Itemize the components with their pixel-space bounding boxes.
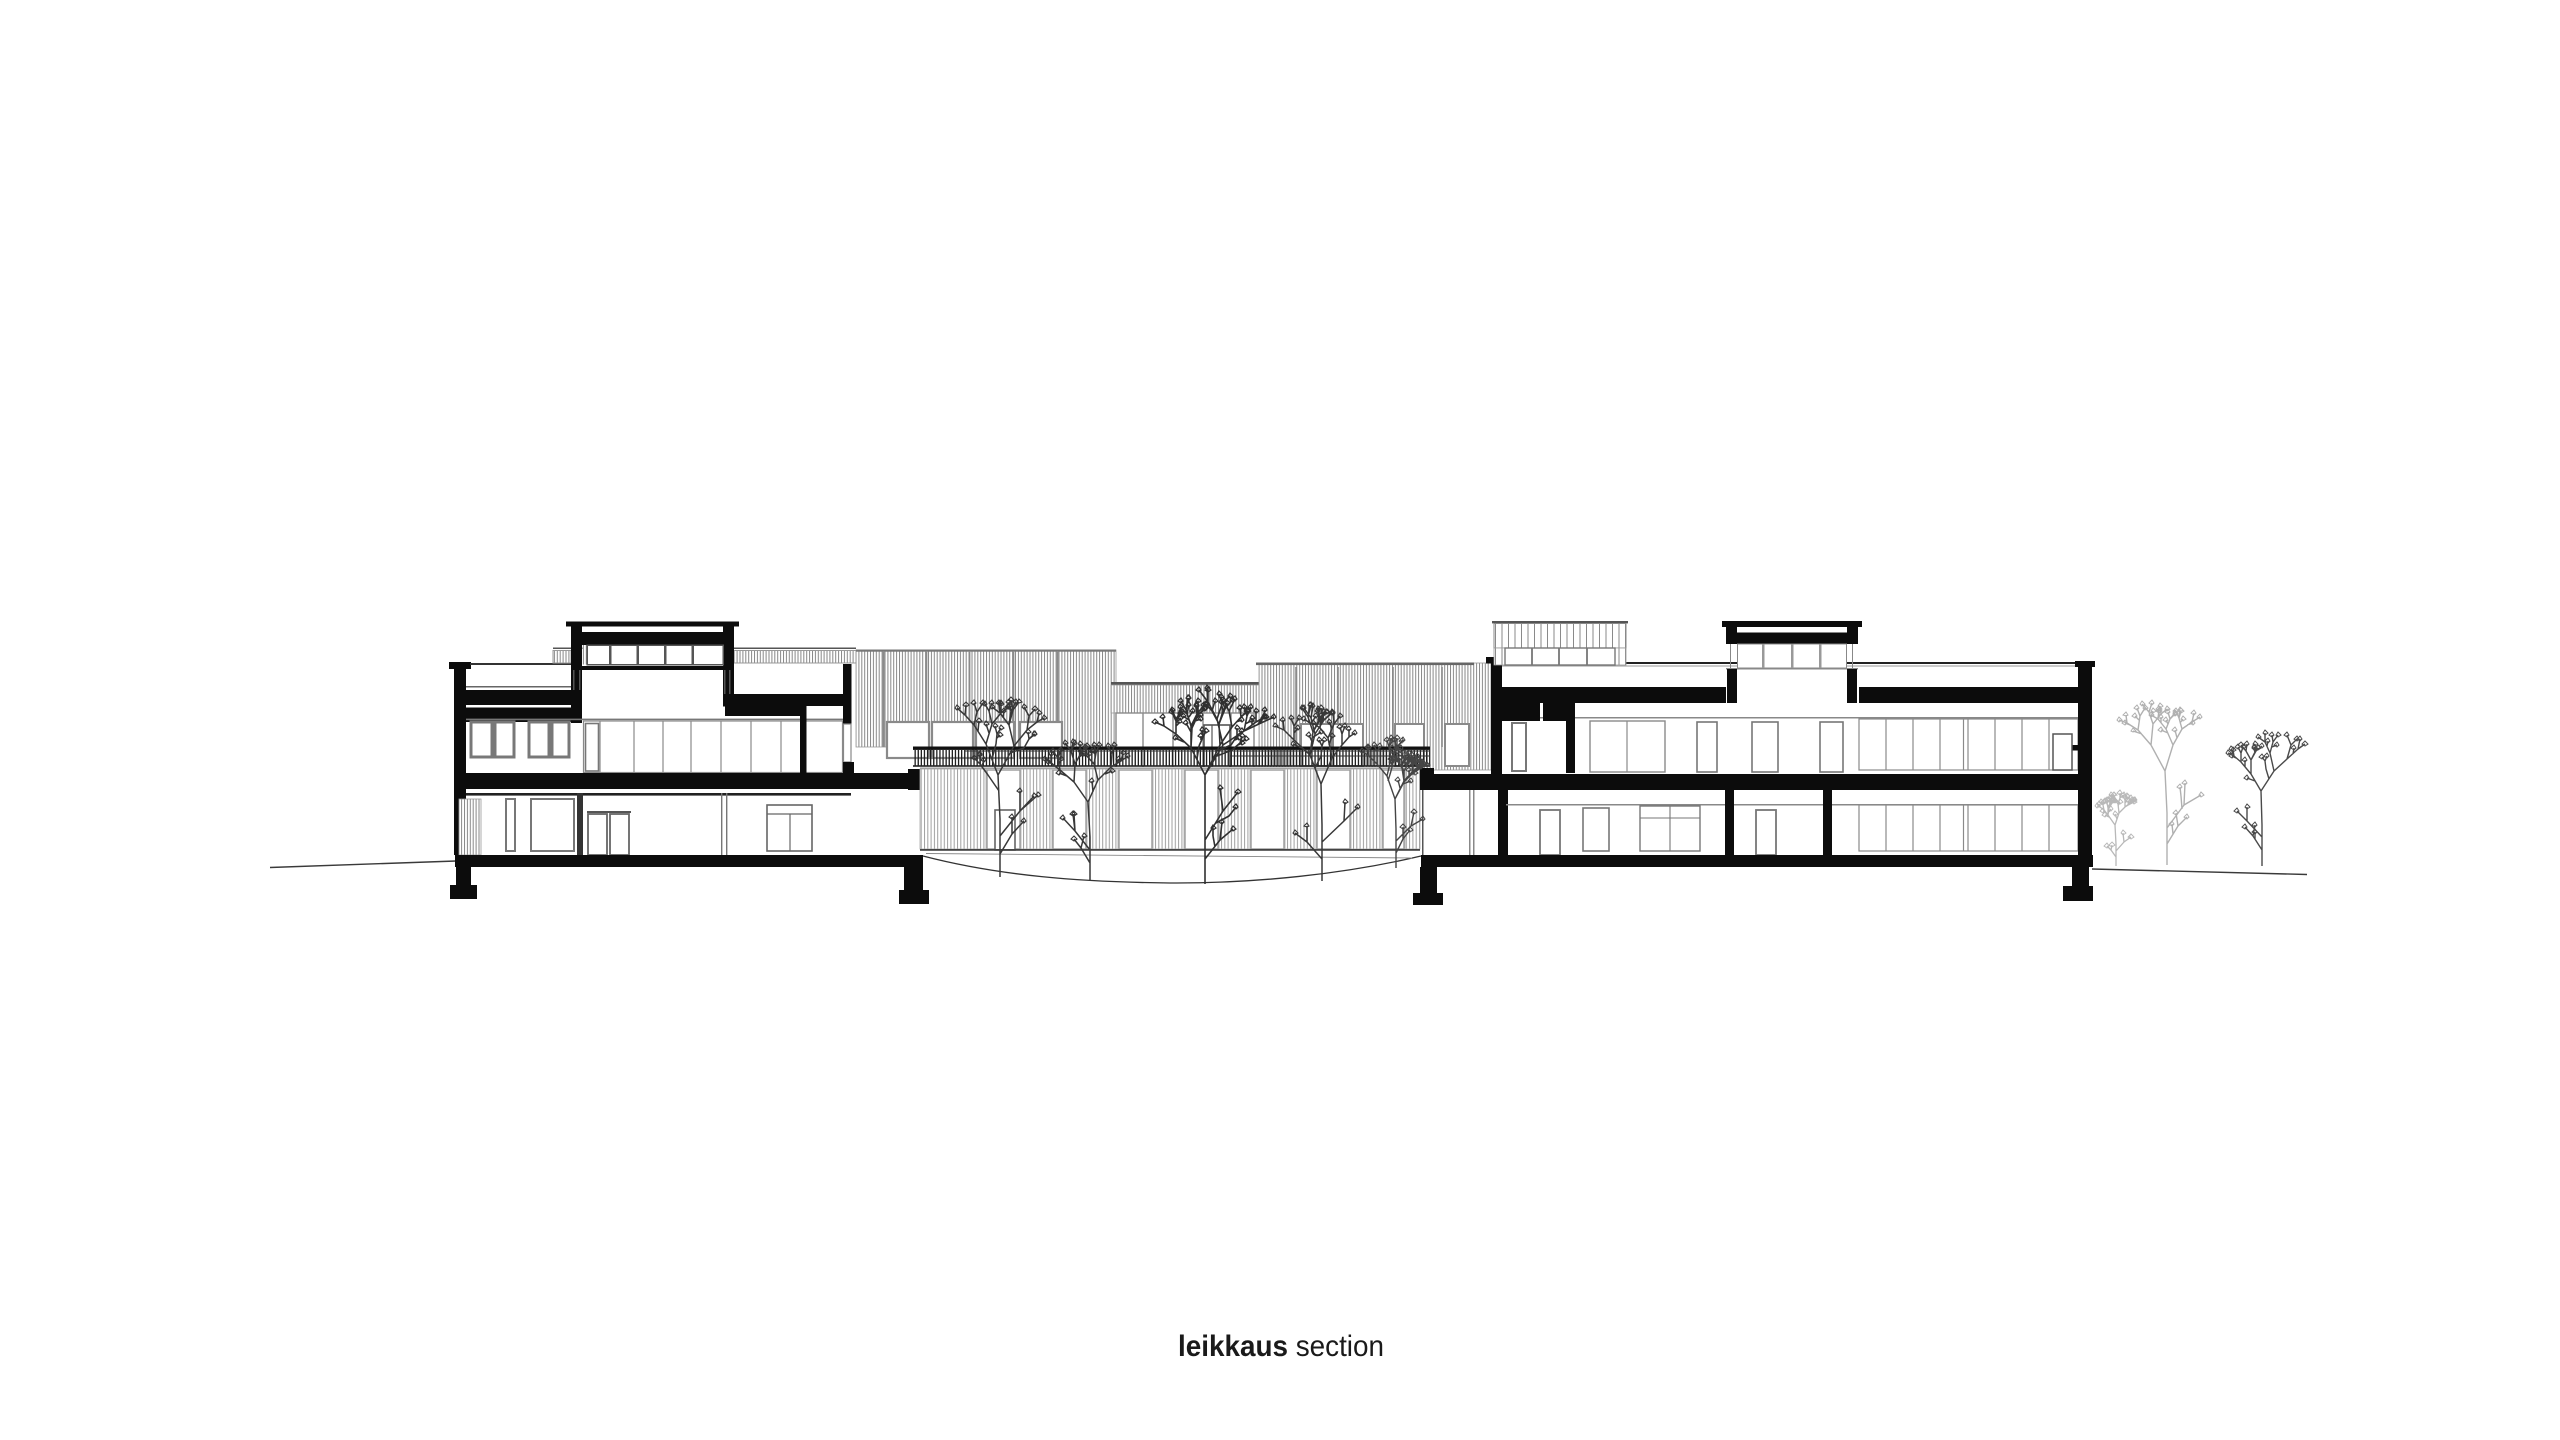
svg-text:leikkaus section: leikkaus section — [1178, 1330, 1384, 1363]
